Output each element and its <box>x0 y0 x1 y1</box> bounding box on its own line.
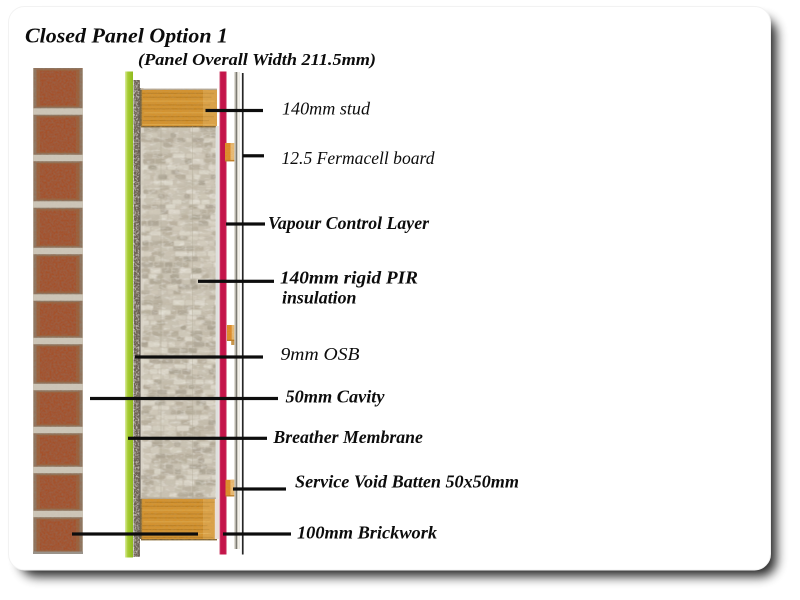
svg-text:Breather Membrane: Breather Membrane <box>272 427 422 447</box>
svg-text:(Panel Overall Width 211.5mm): (Panel Overall Width 211.5mm) <box>138 50 376 69</box>
svg-text:Vapour Control Layer: Vapour Control Layer <box>268 213 430 233</box>
svg-text:100mm Brickwork: 100mm Brickwork <box>297 523 437 543</box>
svg-text:140mm stud: 140mm stud <box>282 99 371 119</box>
svg-text:Service Void Batten 50x50mm: Service Void Batten 50x50mm <box>295 472 519 492</box>
svg-text:insulation: insulation <box>282 287 357 307</box>
svg-text:9mm OSB: 9mm OSB <box>281 344 360 364</box>
svg-text:12.5 Fermacell board: 12.5 Fermacell board <box>282 148 436 168</box>
svg-text:50mm Cavity: 50mm Cavity <box>286 386 386 406</box>
svg-text:140mm rigid PIR: 140mm rigid PIR <box>280 267 418 287</box>
svg-text:Closed Panel Option 1: Closed Panel Option 1 <box>25 24 228 48</box>
